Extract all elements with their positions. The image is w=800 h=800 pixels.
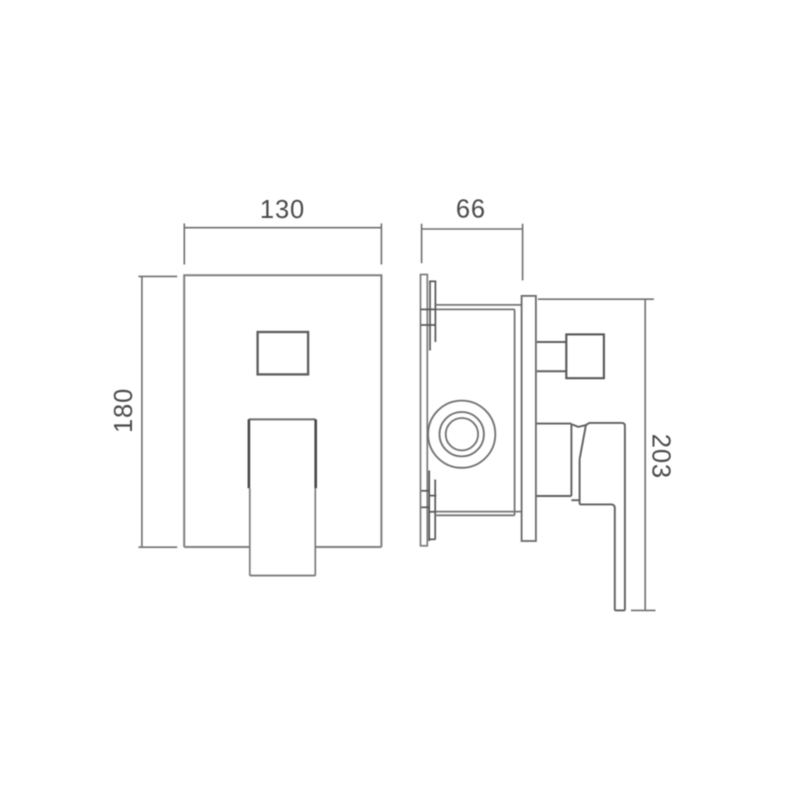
- svg-text:203: 203: [647, 434, 675, 479]
- svg-text:130: 130: [260, 196, 305, 224]
- svg-text:66: 66: [456, 196, 486, 224]
- svg-text:180: 180: [110, 388, 138, 433]
